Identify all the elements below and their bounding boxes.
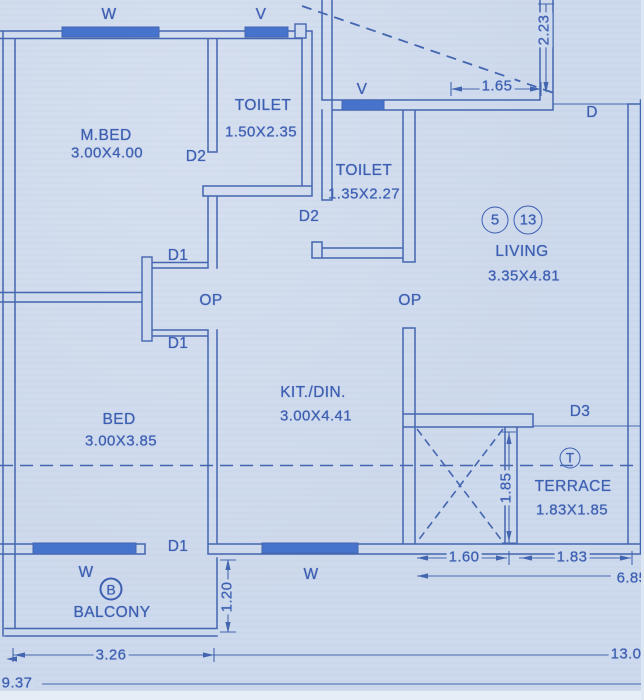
room-size-kitchen: 3.00X4.41 [280, 408, 352, 425]
room-size-toilet1: 1.50X2.35 [225, 124, 297, 141]
flat-number-badge: 13 [514, 206, 543, 235]
opening-label-op: OP [199, 292, 222, 310]
opening-label-op: OP [398, 292, 421, 310]
floor-plan: W V V D M.BED 3.00X4.00 TOILET 1.50X2.35… [0, 0, 644, 700]
room-name-living: LIVING [495, 243, 548, 261]
room-name-toilet1: TOILET [235, 97, 291, 115]
door-sill-lines [533, 104, 640, 426]
room-size-mbed: 3.00X4.00 [71, 145, 143, 162]
dimension-3-26: 3.26 [94, 647, 129, 664]
door-label-d1: D1 [168, 335, 189, 353]
room-size-toilet2: 1.35X2.27 [328, 186, 400, 203]
ventilator-icon [342, 100, 384, 110]
plan-linework [0, 0, 644, 700]
room-name-toilet2: TOILET [336, 162, 392, 180]
window-label: W [101, 6, 116, 24]
dimension-1-60: 1.60 [447, 549, 482, 566]
terrace-marker-badge: T [560, 448, 581, 469]
room-size-bed: 3.00X3.85 [85, 433, 157, 450]
window-icon [33, 543, 136, 554]
dimension-2-23: 2.23 [536, 13, 553, 48]
door-jamb [142, 257, 152, 341]
door-label-d2: D2 [299, 208, 320, 226]
window-label: W [303, 566, 318, 584]
dimension-1-85: 1.85 [498, 471, 515, 506]
door-label-d1: D1 [168, 247, 189, 265]
room-name-mbed: M.BED [80, 127, 131, 145]
balcony-marker-badge: B [100, 578, 123, 601]
dimension-9-37: 9.37 [0, 675, 34, 692]
window-icon [262, 543, 358, 553]
room-size-terrace: 1.83X1.85 [536, 502, 608, 519]
window-label: W [78, 564, 93, 582]
ventilator-label: V [256, 6, 267, 24]
door-label: D [586, 104, 598, 122]
dimension-1-65: 1.65 [480, 78, 515, 95]
dimension-6-85: 6.85 [615, 570, 644, 587]
door-label-d3: D3 [570, 403, 591, 421]
door-label-d2: D2 [186, 148, 207, 166]
flat-number-badge: 5 [482, 207, 509, 234]
dimension-13-0: 13.0 [609, 646, 644, 663]
room-name-balcony: BALCONY [74, 604, 151, 622]
walls [0, 0, 641, 636]
diagonal-dashed-line [302, 6, 554, 93]
window-icon [62, 27, 159, 37]
ventilator-icon [245, 27, 288, 37]
dimension-1-20: 1.20 [219, 580, 236, 615]
room-name-kitchen: KIT./DIN. [280, 384, 346, 402]
paper-edge-bottom [0, 691, 644, 700]
room-name-terrace: TERRACE [535, 478, 612, 496]
duct-cross-lines [417, 429, 503, 542]
wall-end-cap [295, 24, 306, 38]
ventilator-label: V [357, 81, 368, 99]
room-size-living: 3.35X4.81 [488, 268, 560, 285]
door-label-d1: D1 [168, 538, 189, 556]
room-name-bed: BED [102, 411, 135, 429]
dimension-1-83: 1.83 [555, 549, 590, 566]
